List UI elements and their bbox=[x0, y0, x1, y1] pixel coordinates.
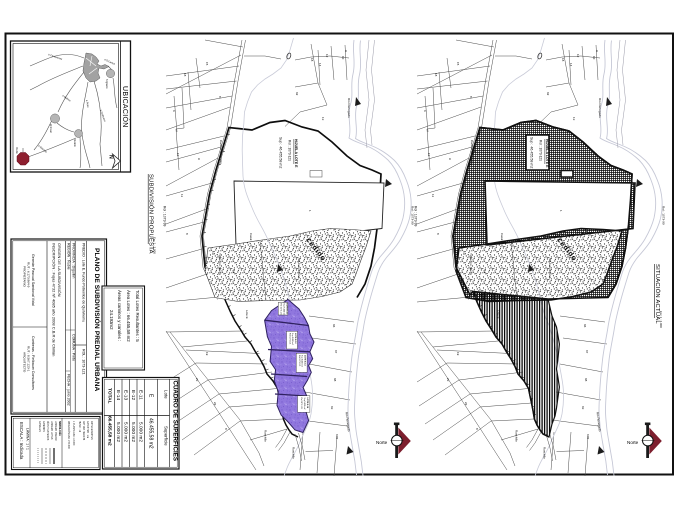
svg-text:RÍOS Y ESTEROS: RÍOS Y ESTEROS bbox=[46, 421, 49, 441]
svg-text:ROL : 1073-121: ROL : 1073-121 bbox=[82, 349, 86, 374]
svg-text:DAT UM : WGS 84: DAT UM : WGS 84 bbox=[82, 421, 85, 441]
svg-text:REGIÓN : Ñuble: REGIÓN : Ñuble bbox=[67, 243, 72, 270]
svg-text:TOTAL: TOTAL bbox=[107, 388, 113, 404]
svg-text:S.Ignacio: S.Ignacio bbox=[105, 79, 107, 89]
svg-text:5.000 m2: 5.000 m2 bbox=[130, 422, 136, 442]
svg-text:INSCRIPCIÓN : Fojas 4732 Nº 40: INSCRIPCIÓN : Fojas 4732 Nº 4085 año 200… bbox=[52, 243, 57, 356]
svg-text:Áreas caminos y canales :: Áreas caminos y canales : bbox=[117, 290, 122, 341]
svg-text:LÁMINA : 1 / 1: LÁMINA : 1 / 1 bbox=[26, 428, 30, 450]
svg-text:ARQUITECTO: ARQUITECTO bbox=[23, 352, 27, 373]
svg-text:5.000 m2: 5.000 m2 bbox=[138, 422, 144, 442]
svg-text:Rol 1073-121: Rol 1073-121 bbox=[280, 303, 282, 314]
svg-text:Esc 1 : 2.000: Esc 1 : 2.000 bbox=[153, 237, 157, 254]
svg-text:Superficie: Superficie bbox=[164, 426, 169, 446]
svg-text:Lote: Lote bbox=[164, 390, 169, 399]
svg-text:Rol 1073-121: Rol 1073-121 bbox=[300, 398, 302, 409]
svg-text:UBICACIÓN: UBICACIÓN bbox=[121, 86, 130, 128]
svg-text:Total Lotes Resultantes : 5: Total Lotes Resultantes : 5 bbox=[135, 290, 140, 342]
svg-text:N: N bbox=[108, 155, 114, 159]
svg-text:Sup 5.000 m2: Sup 5.000 m2 bbox=[301, 355, 303, 367]
svg-text:Predio: Predio bbox=[15, 147, 18, 154]
svg-text:CANALES: CANALES bbox=[38, 421, 41, 432]
svg-text:UBICACIÓN ESC 1:50.000: UBICACIÓN ESC 1:50.000 bbox=[67, 421, 70, 449]
svg-text:Esc 1 : 2.000: Esc 1 : 2.000 bbox=[659, 311, 663, 328]
svg-text:24.193m2: 24.193m2 bbox=[109, 310, 114, 330]
svg-text:ESCALA : Indicada: ESCALA : Indicada bbox=[19, 422, 24, 460]
svg-text:PROVINCIA : Diguillín: PROVINCIA : Diguillín bbox=[72, 243, 76, 278]
svg-text:5.000 m2: 5.000 m2 bbox=[115, 422, 121, 442]
svg-text:CAMINOS: CAMINOS bbox=[42, 421, 45, 432]
svg-text:Sup 5.000 m2: Sup 5.000 m2 bbox=[291, 333, 293, 345]
svg-text:E-13: E-13 bbox=[123, 390, 129, 400]
svg-text:LINDERO PREDIO: LINDERO PREDIO bbox=[54, 421, 56, 441]
svg-text:PREDIO : Lote E, Fundo Potreri: PREDIO : Lote E, Fundo Potrerillos de Qu… bbox=[82, 243, 86, 322]
svg-text:1 PLANTA ESC 1:2.000: 1 PLANTA ESC 1:2.000 bbox=[72, 421, 75, 446]
svg-text:ANTECEDENTES: ANTECEDENTES bbox=[90, 421, 93, 440]
svg-text:E-11: E-11 bbox=[138, 390, 144, 400]
svg-text:LOTE E-13: LOTE E-13 bbox=[304, 355, 306, 366]
svg-text:46.455,58 m2: 46.455,58 m2 bbox=[148, 418, 154, 449]
svg-text:E-14: E-14 bbox=[115, 390, 121, 400]
svg-text:Contreras - Fielbaum Consultor: Contreras - Fielbaum Consultores bbox=[31, 336, 35, 390]
svg-text:PLANO DE SUBDIVISIÓN PREDIAL U: PLANO DE SUBDIVISIÓN PREDIAL URBANA bbox=[93, 248, 102, 391]
svg-text:Rol 1073-121: Rol 1073-121 bbox=[298, 355, 300, 366]
svg-text:PROPIETARIO: PROPIETARIO bbox=[23, 266, 27, 288]
svg-text:LOTE E-14: LOTE E-14 bbox=[306, 398, 309, 409]
svg-text:LOTE E-11: LOTE E-11 bbox=[285, 303, 287, 314]
svg-text:66.455,58 m2: 66.455,58 m2 bbox=[107, 416, 113, 446]
svg-text:5.000 m2: 5.000 m2 bbox=[123, 422, 129, 442]
svg-text:Sup 5.000 m2: Sup 5.000 m2 bbox=[282, 303, 284, 315]
svg-text:CUADRO DE SUPERFICIES: CUADRO DE SUPERFICIES bbox=[172, 381, 179, 461]
svg-text:Germán Pascual Sandoval Vidal: Germán Pascual Sandoval Vidal bbox=[31, 254, 35, 306]
svg-text:SIMBOLOGÍA: SIMBOLOGÍA bbox=[58, 421, 61, 436]
svg-text:HUSO : 19: HUSO : 19 bbox=[78, 421, 80, 433]
svg-text:LOTE E-12: LOTE E-12 bbox=[294, 333, 296, 344]
svg-text:COMUNA : Pinto: COMUNA : Pinto bbox=[72, 334, 76, 361]
svg-text:CATASTRO : s/u: CATASTRO : s/u bbox=[86, 421, 89, 439]
svg-text:LINDERO LOTES: LINDERO LOTES bbox=[50, 421, 52, 440]
svg-text:Sup 5.000 m2: Sup 5.000 m2 bbox=[303, 398, 305, 410]
svg-text:Recinto: Recinto bbox=[73, 139, 76, 148]
svg-text:ORIGEN DE LA SUBDIVISIÓN: ORIGEN DE LA SUBDIVISIÓN bbox=[57, 243, 62, 297]
svg-text:Rol 1073-121: Rol 1073-121 bbox=[288, 333, 290, 344]
svg-text:FECHA : junio 2002: FECHA : junio 2002 bbox=[67, 374, 71, 406]
svg-text:El Rosal: El Rosal bbox=[49, 124, 51, 133]
svg-text:Área Lotes : 66.455,58 m2: Área Lotes : 66.455,58 m2 bbox=[126, 290, 131, 342]
svg-text:E-12: E-12 bbox=[130, 390, 136, 400]
